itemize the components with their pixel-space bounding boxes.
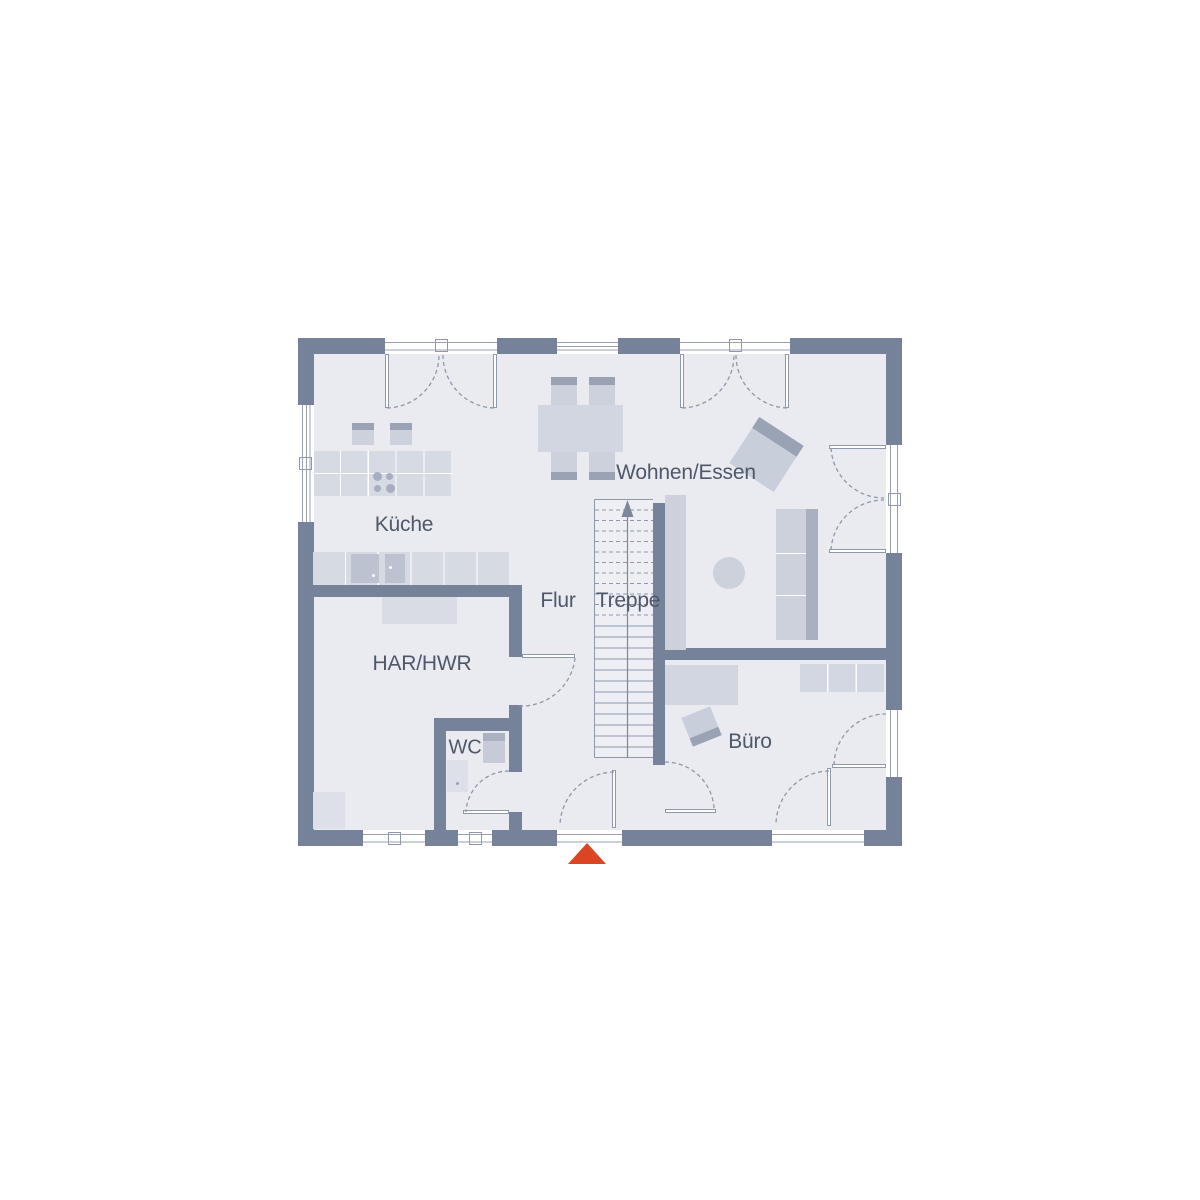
washbasin [447, 760, 468, 792]
interior-wall-wc-left [434, 718, 446, 830]
dining-chair [589, 452, 615, 480]
bar-stool [352, 423, 374, 445]
sofa [776, 509, 818, 640]
door-marker [435, 339, 448, 352]
kitchen-appliance [351, 554, 379, 583]
dining-table [538, 405, 623, 452]
door-leaf [832, 764, 886, 768]
office-shelf [800, 664, 884, 692]
door-leaf [680, 354, 684, 408]
page: Küche Wohnen/Essen Flur Treppe HAR/HWR W… [0, 0, 1200, 1200]
kitchen-counter [313, 552, 510, 585]
har-door-leaf [522, 654, 575, 658]
room-label-wc: WC [449, 737, 482, 760]
room-label-har-hwr: HAR/HWR [373, 652, 472, 676]
window-top [557, 338, 618, 354]
wc-door-leaf [463, 810, 509, 814]
room-label-treppe: Treppe [596, 589, 661, 613]
door-marker [729, 339, 742, 352]
door-leaf [829, 445, 886, 449]
coffee-table [713, 557, 745, 589]
terrace-door-office-bottom [772, 830, 864, 846]
desk [665, 665, 738, 705]
door-leaf [829, 549, 886, 553]
bar-stool [390, 423, 412, 445]
cooktop-burner [386, 484, 395, 493]
cooktop-burner [374, 485, 381, 492]
kitchen-appliance [385, 554, 405, 583]
sideboard [665, 495, 686, 650]
room-label-flur: Flur [540, 589, 575, 613]
room-label-wohnen-essen: Wohnen/Essen [616, 461, 756, 485]
interior-wall-kitchen [314, 585, 522, 597]
window-marker [299, 457, 312, 470]
dining-chair [551, 377, 577, 405]
window-marker [388, 832, 401, 845]
cooktop-burner [373, 472, 382, 481]
dining-chair [551, 452, 577, 480]
interior-wall-living-office [663, 648, 886, 660]
interior-wall-flur-lower [509, 705, 522, 772]
front-door-leaf [612, 770, 616, 828]
office-door-leaf [665, 809, 716, 813]
cooktop-burner [386, 473, 393, 480]
door-leaf [785, 354, 789, 408]
door-leaf [827, 768, 831, 826]
door-marker [888, 493, 901, 506]
door-leaf [493, 354, 497, 408]
door-leaf [385, 354, 389, 408]
toilet [483, 733, 505, 763]
interior-wall-flur-upper [509, 585, 522, 657]
floor-plan: Küche Wohnen/Essen Flur Treppe HAR/HWR W… [298, 338, 902, 846]
interior-wall-wc-stub [509, 812, 522, 830]
terrace-door-office-right [886, 710, 902, 777]
interior-wall-stair [653, 503, 665, 765]
dining-chair [589, 377, 615, 405]
room-label-kueche: Küche [375, 513, 434, 537]
room-label-buero: Büro [728, 730, 772, 754]
utility-unit [313, 792, 345, 829]
storage-shelf [382, 597, 457, 624]
staircase [594, 499, 653, 758]
entrance-marker-icon [568, 843, 606, 864]
kitchen-island [313, 451, 452, 496]
interior-wall-wc-top [434, 718, 521, 731]
window-marker [469, 832, 482, 845]
